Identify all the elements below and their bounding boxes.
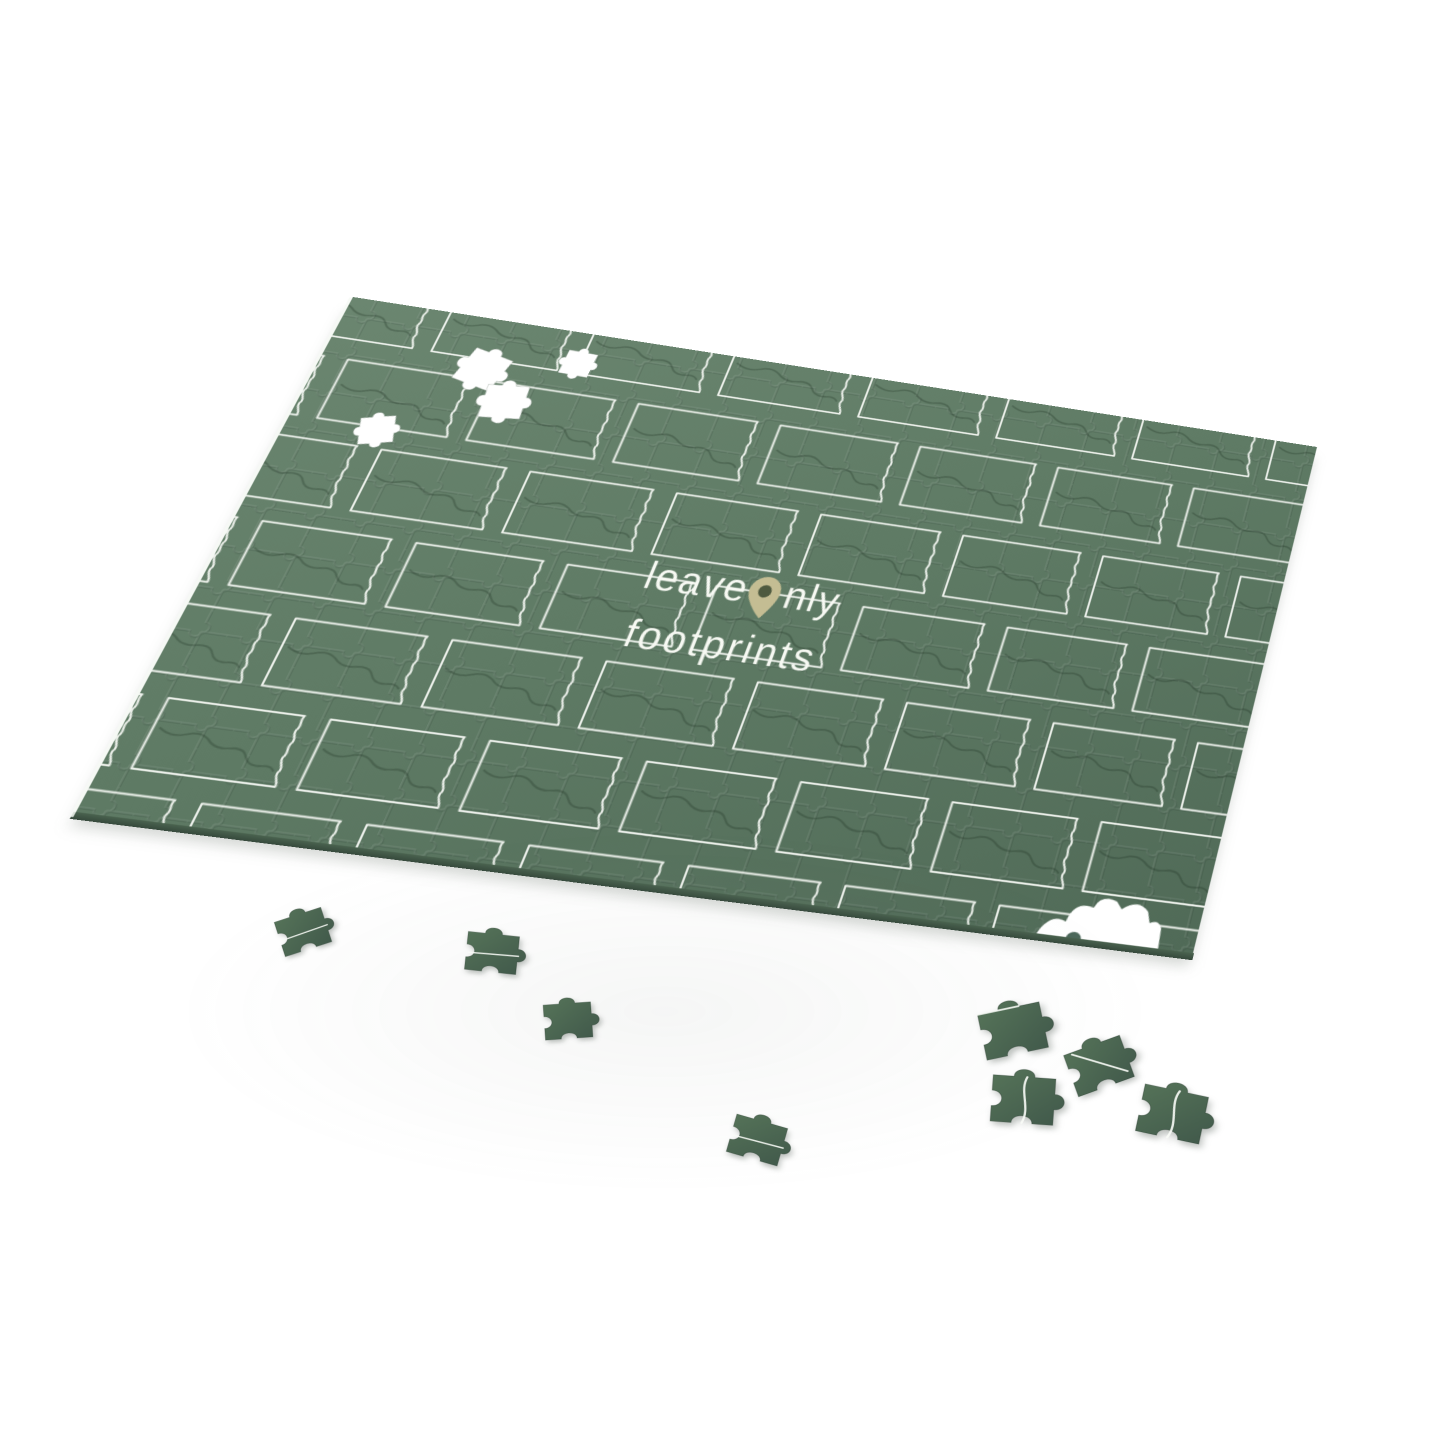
loose-puzzle-piece	[701, 1093, 813, 1188]
state-outline-tile	[1275, 668, 1317, 748]
loose-puzzle-piece	[1105, 1059, 1238, 1169]
loose-puzzle-piece	[523, 986, 614, 1056]
state-outline-tile	[1232, 841, 1317, 926]
state-outline-tile	[76, 574, 115, 661]
state-outline-tile	[1314, 509, 1317, 584]
loose-puzzle-piece	[442, 914, 542, 993]
state-outline-tile	[76, 404, 210, 485]
loose-puzzle-piece	[251, 887, 356, 977]
state-outline-tile	[136, 297, 297, 326]
puzzle-board: leavenly footprints	[76, 297, 1317, 953]
product-photo-stage: leavenly footprints	[0, 0, 1445, 1445]
